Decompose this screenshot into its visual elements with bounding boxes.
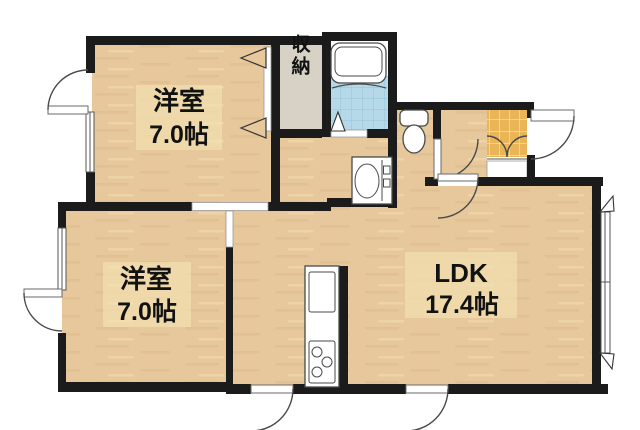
door-swing-arc: [531, 116, 574, 159]
closet-label: 収納: [289, 34, 311, 78]
wall-ldk-right: [592, 177, 601, 394]
entrance-tile: [487, 108, 527, 157]
door-leaf: [251, 385, 293, 393]
door-leaf: [48, 106, 88, 114]
door-leaf: [24, 289, 62, 297]
door-leaf: [438, 174, 478, 181]
floor-plan-canvas: 洋室 7.0帖 洋室 7.0帖 LDK 17.4帖 収納: [0, 0, 640, 430]
bathtub-icon: [331, 43, 386, 88]
door-leaf: [531, 110, 574, 121]
sliding-opening-bedroom2: [226, 211, 233, 247]
wall-bedroom2-bottom: [58, 382, 233, 392]
stove-burners-icon: [309, 341, 335, 383]
window-arrow-bottom-icon: [600, 353, 614, 369]
wall-entry-top: [392, 102, 533, 110]
ldk-size: 17.4帖: [425, 291, 499, 319]
wall-closet-bath: [322, 36, 331, 137]
ldk-label: LDK: [434, 258, 488, 288]
door-swing-arc: [406, 389, 448, 430]
wall-hall-south: [268, 202, 331, 211]
wall-bedroom2-left-upper: [58, 202, 66, 228]
wall-ldk-top-b: [478, 177, 603, 186]
entry-hall-floor: [441, 110, 487, 177]
bedroom1-size: 7.0帖: [149, 121, 209, 149]
bedroom1-label: 洋室: [153, 86, 205, 116]
wall-bedroom1-right: [271, 36, 280, 211]
wall-left-upper: [86, 36, 95, 73]
front-door: [531, 110, 574, 159]
bedroom2-label: 洋室: [120, 264, 172, 294]
bedroom2-size: 7.0帖: [117, 298, 177, 326]
door-leaf: [406, 385, 448, 393]
entrance-step: [487, 161, 527, 178]
bedroom2-exterior-door: [24, 289, 62, 331]
kitchen-back-door: [251, 385, 293, 430]
wall-ldk-bottom-a: [226, 384, 251, 394]
sliding-opening-bedroom1: [192, 203, 268, 211]
wall-toilet-hall: [433, 110, 441, 139]
wall-bath-bottom: [367, 129, 388, 138]
door-leaf: [434, 139, 441, 179]
door-swing-arc: [24, 293, 62, 331]
kitchen-sink-icon: [309, 272, 335, 312]
washbasin-icon: [352, 157, 392, 204]
wall-kitchen-partition: [339, 266, 348, 390]
wall-closet-bottom: [271, 129, 322, 138]
door-swing-arc: [251, 389, 293, 430]
wall-bedroom-divider: [58, 202, 192, 211]
wall-bedroom2-right: [226, 247, 233, 384]
bedroom1-exterior-door: [48, 70, 88, 114]
window-arrow-top-icon: [600, 196, 614, 212]
wall-ldk-bottom-c: [448, 384, 608, 394]
toilet-icon: [400, 110, 428, 153]
floor-plan: 洋室 7.0帖 洋室 7.0帖 LDK 17.4帖 収納: [0, 0, 640, 430]
ldk-south-door: [406, 385, 448, 430]
kitchen-counter: [305, 266, 339, 387]
door-swing-arc: [48, 70, 88, 110]
wall-bath-top: [322, 32, 397, 41]
